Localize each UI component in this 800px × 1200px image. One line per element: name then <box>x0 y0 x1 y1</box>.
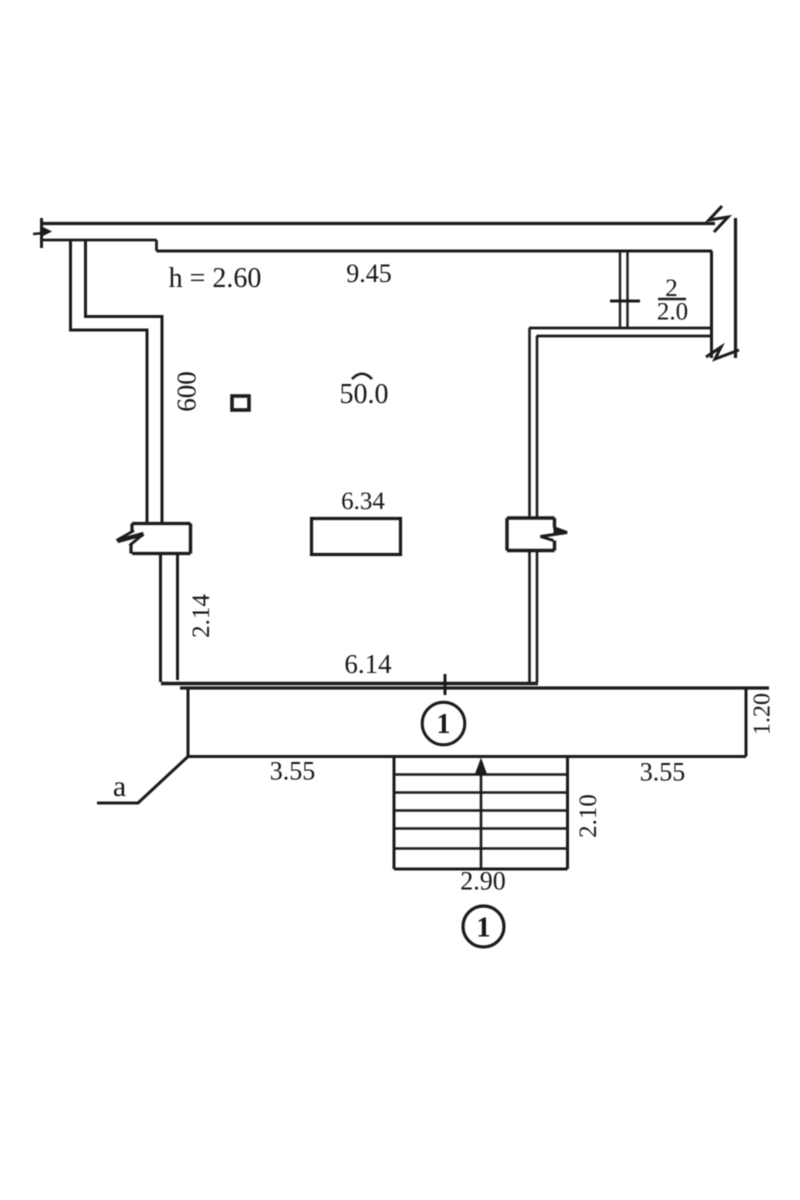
svg-text:h = 2.60: h = 2.60 <box>169 263 262 294</box>
svg-text:6.34: 6.34 <box>341 488 385 515</box>
svg-text:2.90: 2.90 <box>460 867 506 896</box>
svg-text:2.14: 2.14 <box>188 594 215 638</box>
svg-text:50.0: 50.0 <box>340 379 389 410</box>
svg-text:3.55: 3.55 <box>270 757 316 786</box>
svg-text:6.14: 6.14 <box>344 649 392 679</box>
svg-text:a: a <box>113 770 126 803</box>
svg-text:1: 1 <box>437 709 451 740</box>
svg-text:2.0: 2.0 <box>657 299 688 326</box>
svg-text:3.55: 3.55 <box>640 758 686 787</box>
svg-text:1.20: 1.20 <box>750 693 776 735</box>
svg-text:2.10: 2.10 <box>575 794 602 838</box>
svg-text:9.45: 9.45 <box>346 259 392 288</box>
svg-text:600: 600 <box>172 371 202 412</box>
svg-text:1: 1 <box>476 912 491 944</box>
